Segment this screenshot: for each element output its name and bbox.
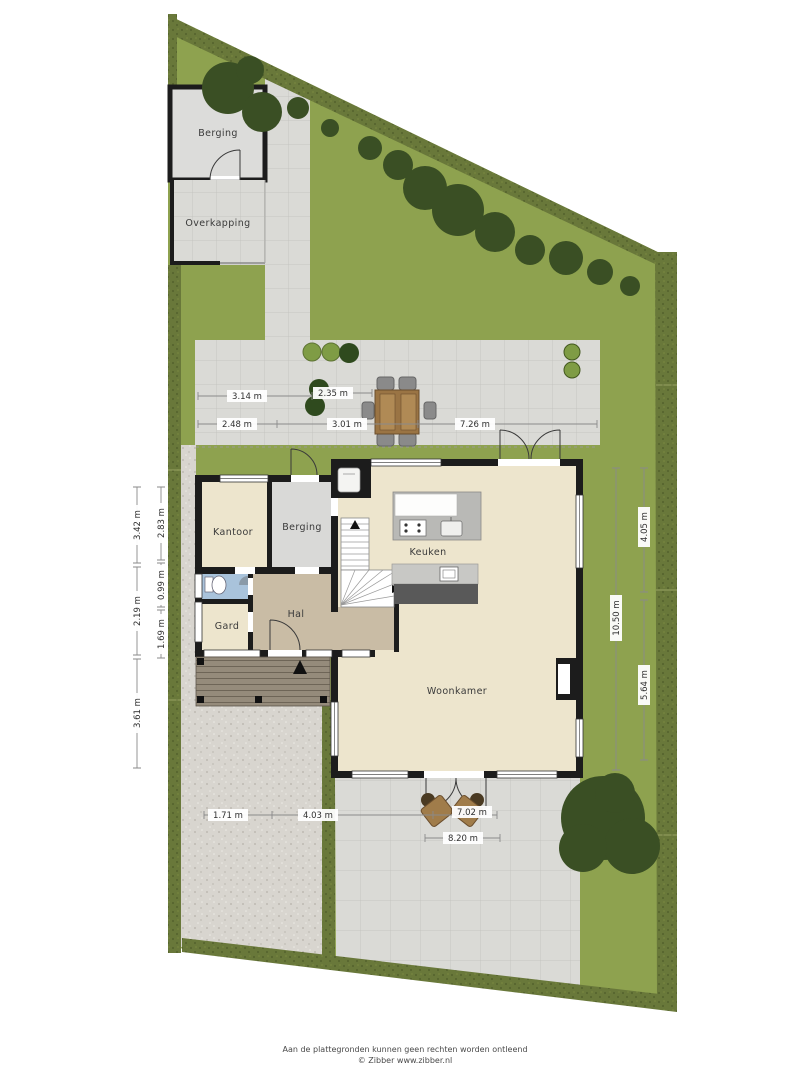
dim-820: 8.20 m xyxy=(448,834,478,844)
floorplan-page: 3.14 m 2.35 m 2.48 m 3.01 m 7.26 m 1.71 … xyxy=(0,0,810,1080)
dining-chair xyxy=(399,377,416,390)
dim-235: 2.35 m xyxy=(318,389,348,399)
footer-disclaimer: Aan de plattegronden kunnen geen rechten… xyxy=(0,1044,810,1055)
kitchen-island xyxy=(393,492,481,540)
cooktop xyxy=(400,520,426,536)
label-overkapping: Overkapping xyxy=(185,218,250,229)
sink xyxy=(441,521,462,536)
label-shed-berging: Berging xyxy=(198,128,238,139)
dim-301: 3.01 m xyxy=(332,420,362,430)
label-keuken: Keuken xyxy=(409,547,446,558)
room-kantoor-floor xyxy=(202,482,267,567)
label-kantoor: Kantoor xyxy=(213,527,253,538)
hedge-left-top xyxy=(168,14,177,88)
dim-726: 7.26 m xyxy=(460,420,490,430)
dim-314: 3.14 m xyxy=(232,392,262,402)
porch-deck xyxy=(196,657,330,706)
dining-chair xyxy=(424,402,436,419)
hedge-right xyxy=(655,252,677,1010)
dining-chair xyxy=(362,402,374,419)
dim-283: 2.83 m xyxy=(157,508,167,538)
dim-702: 7.02 m xyxy=(457,808,487,818)
dining-chair xyxy=(399,433,416,446)
label-hal: Hal xyxy=(288,609,305,620)
dim-219: 2.19 m xyxy=(133,596,143,626)
dining-chair xyxy=(377,433,394,446)
label-berging-house: Berging xyxy=(282,522,322,533)
footer: Aan de plattegronden kunnen geen rechten… xyxy=(0,1044,810,1066)
dim-169: 1.69 m xyxy=(157,619,167,649)
dim-564: 5.64 m xyxy=(640,670,650,700)
boiler-closet xyxy=(331,462,371,498)
dim-248: 2.48 m xyxy=(222,420,252,430)
kitchen-counter xyxy=(392,564,478,604)
dim-403: 4.03 m xyxy=(303,811,333,821)
wc-bowl xyxy=(212,576,226,594)
room-hal-floor-ext xyxy=(331,607,394,650)
dim-405: 4.05 m xyxy=(640,512,650,542)
dim-099: 0.99 m xyxy=(157,570,167,600)
label-gard: Gard xyxy=(215,621,240,632)
dining-chair xyxy=(377,377,394,390)
siteplan-canvas: 3.14 m 2.35 m 2.48 m 3.01 m 7.26 m 1.71 … xyxy=(0,0,810,1080)
dim-342: 3.42 m xyxy=(133,510,143,540)
dim-361: 3.61 m xyxy=(133,698,143,728)
footer-credit: © Zibber www.zibber.nl xyxy=(0,1055,810,1066)
label-woonkamer: Woonkamer xyxy=(427,686,487,697)
hedge-left xyxy=(168,265,181,953)
dim-1050: 10.50 m xyxy=(612,600,622,635)
fireplace-niche xyxy=(556,658,578,700)
dim-171: 1.71 m xyxy=(213,811,243,821)
